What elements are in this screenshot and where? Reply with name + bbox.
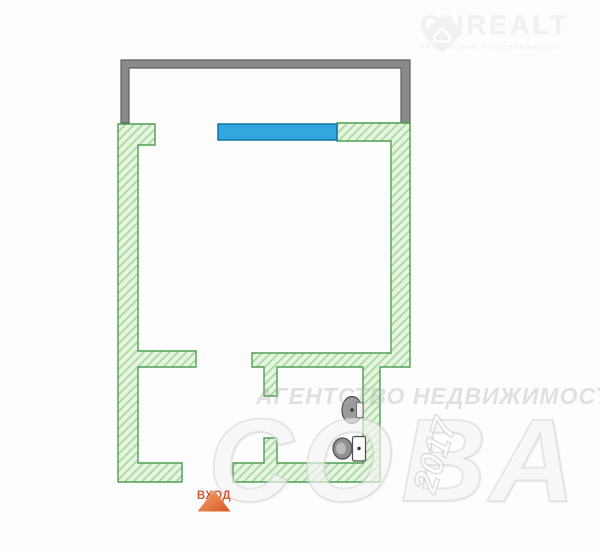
balcony-wall	[121, 60, 410, 123]
big-watermark: СОВА	[208, 402, 583, 520]
entrance-marker: ВХОД	[186, 488, 242, 502]
wall-left-system	[118, 124, 196, 482]
house-in-diamond-icon	[420, 12, 464, 56]
onrealt-logo: ONREALT объявления о недвижимости	[420, 12, 570, 51]
entrance-arrow-icon	[186, 488, 242, 514]
floorplan-image: ONREALT объявления о недвижимости АГЕНТС…	[0, 0, 600, 550]
window	[218, 124, 337, 140]
